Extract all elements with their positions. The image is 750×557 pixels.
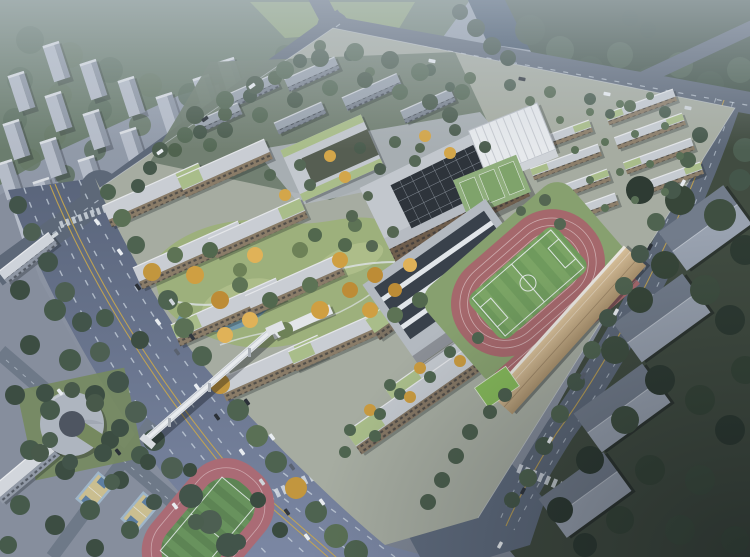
aerial-campus-rendering xyxy=(0,0,750,557)
vignette-overlay xyxy=(0,0,750,557)
rendering-canvas xyxy=(0,0,750,557)
